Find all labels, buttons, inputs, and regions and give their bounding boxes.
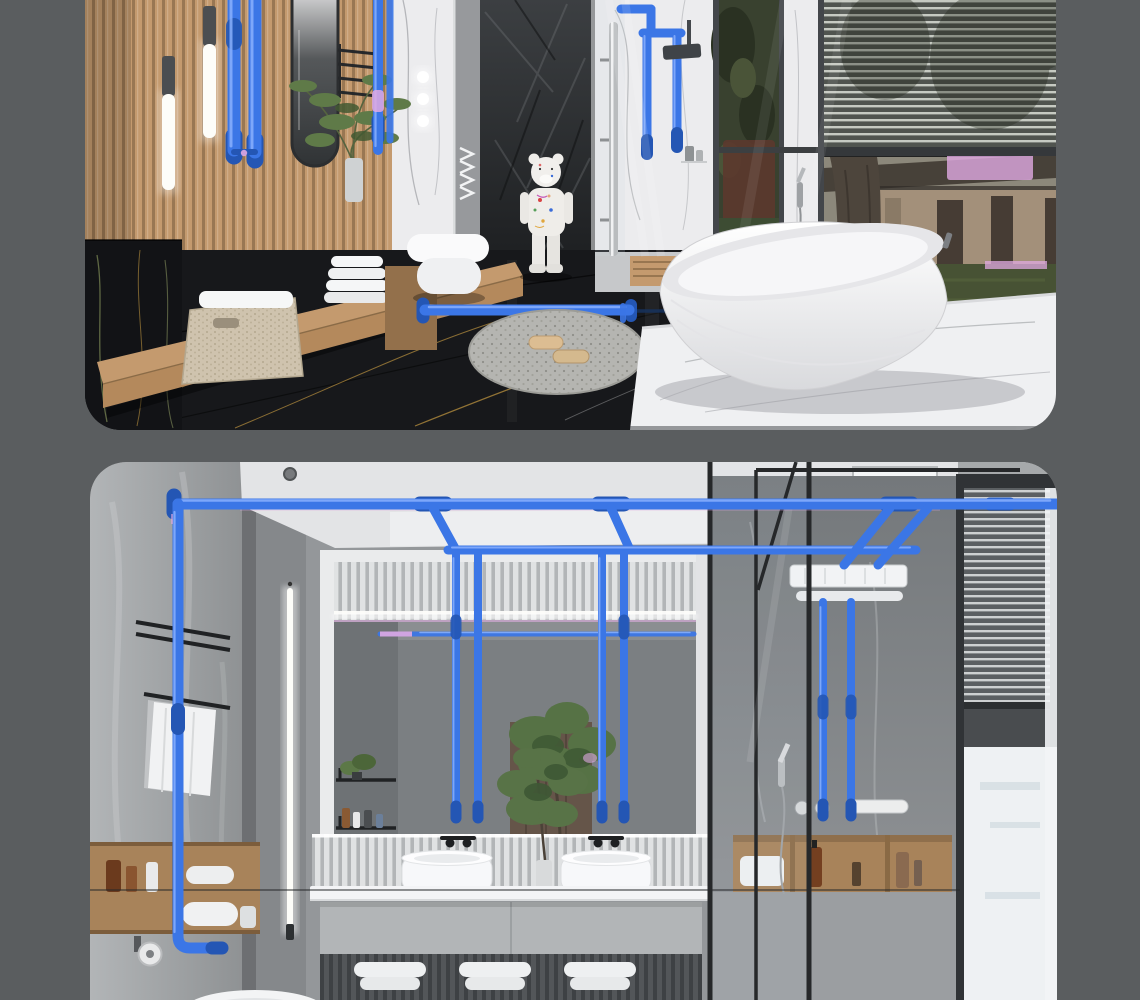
- blue-pipes-mid: [372, 0, 390, 150]
- gray-pier: [453, 0, 480, 254]
- in-mirror-pipe: [380, 633, 694, 635]
- page-background: [0, 0, 1140, 1000]
- niche-side-wall: [334, 622, 398, 834]
- vessel-sink-left: [402, 851, 492, 893]
- folded-towel: [199, 291, 293, 308]
- marble-counter: [310, 886, 712, 901]
- bathroom-render-bottom: [90, 462, 1057, 1000]
- bathroom-render-bottom-scene: [90, 462, 1057, 1000]
- ceiling-spotlight: [284, 468, 296, 480]
- amber-bottle: [106, 860, 121, 892]
- bathroom-render-top-scene: [85, 0, 1056, 430]
- pebble-rug: [469, 310, 645, 394]
- shower-head: [663, 43, 702, 60]
- venetian-blinds-window: [964, 488, 1050, 702]
- vessel-sink-right: [561, 851, 651, 893]
- plant-vase: [345, 158, 363, 202]
- magenta-glitch-lawn: [985, 261, 1047, 269]
- blinds-rail: [824, 147, 1056, 156]
- window-right: [956, 474, 1057, 1000]
- pump-bottle: [146, 862, 158, 892]
- magenta-glitch-roof: [947, 152, 1033, 180]
- marble-wall-left: [392, 0, 453, 254]
- towel-shelf: [320, 954, 702, 1000]
- bathroom-render-top: [85, 0, 1056, 430]
- rolled-towels: [354, 962, 636, 990]
- led-strip-light: [282, 582, 298, 940]
- round-wall-lights: [413, 67, 433, 131]
